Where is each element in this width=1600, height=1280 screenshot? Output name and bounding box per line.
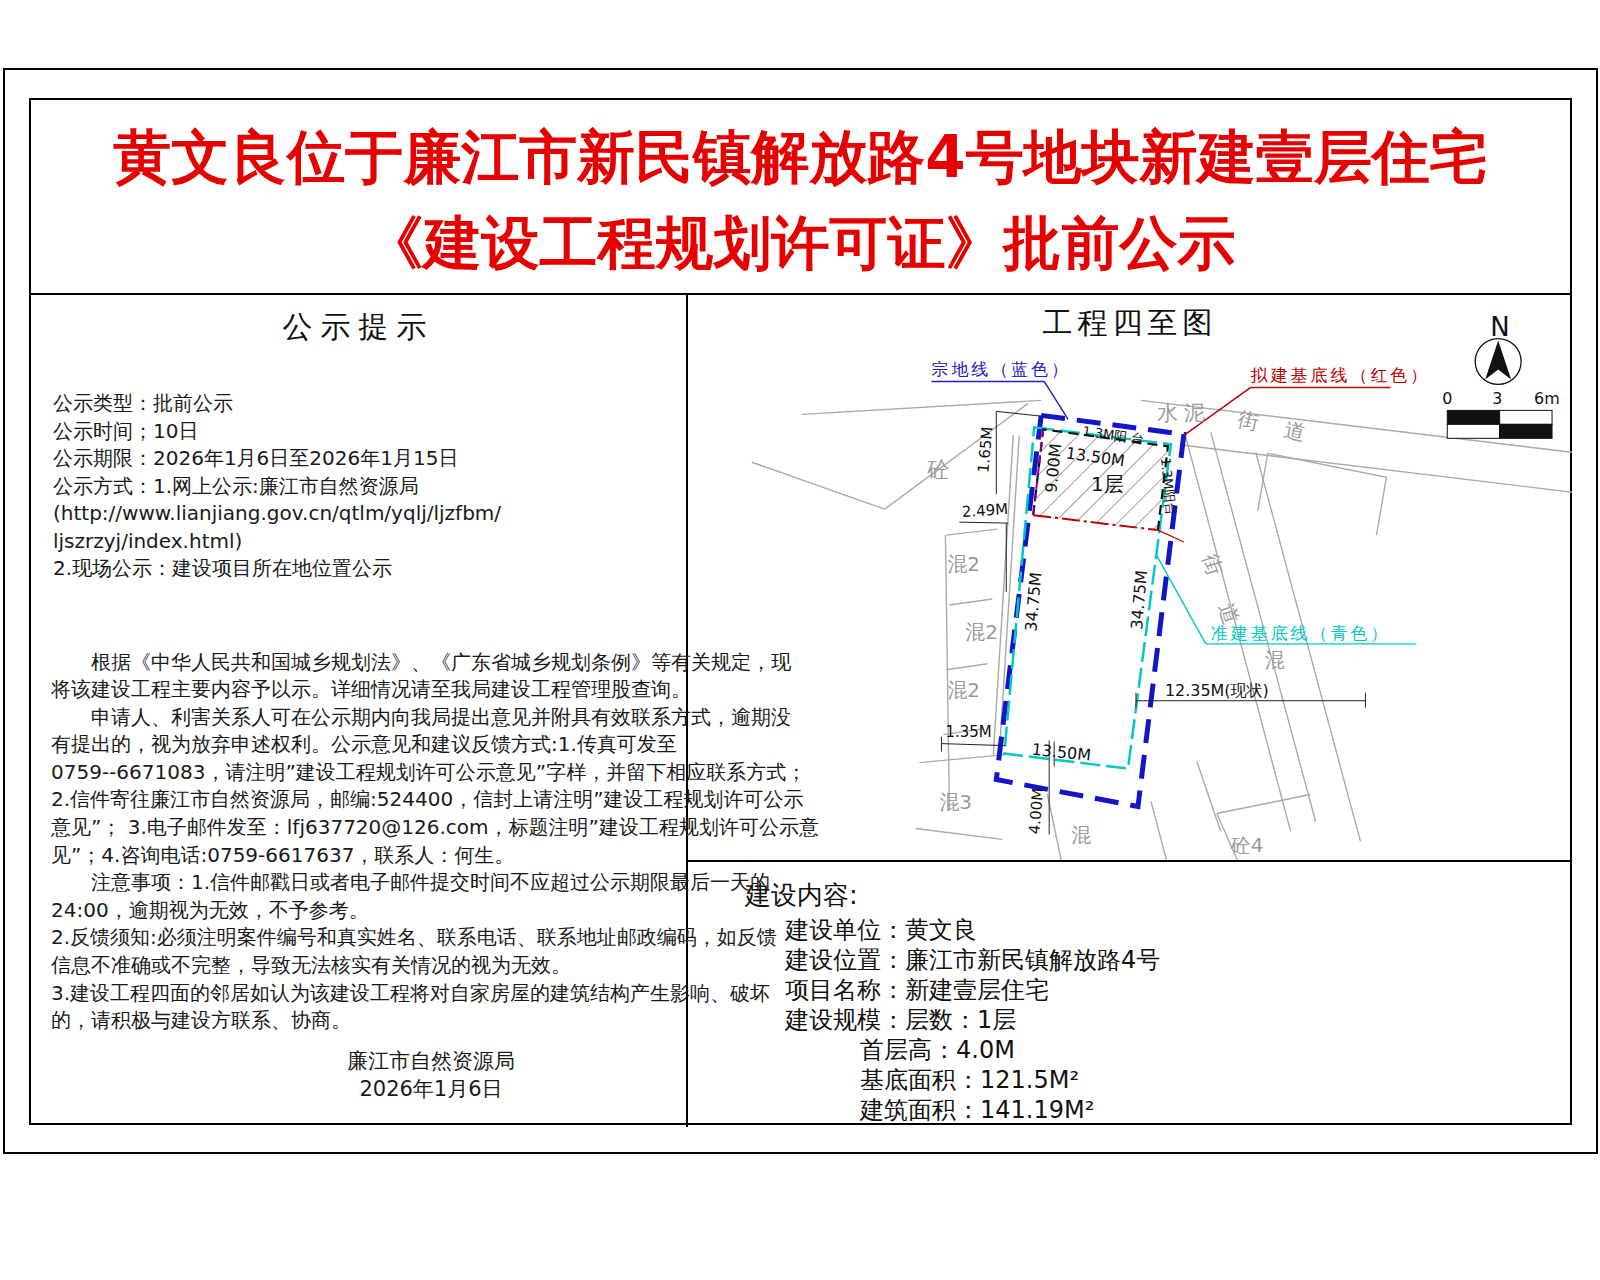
- area-label-tong4: 砼4: [1230, 833, 1264, 857]
- scale-tick-0: 0: [1442, 389, 1452, 408]
- inner-frame: 黄文良位于廉江市新民镇解放路4号地块新建壹层住宅 《建设工程规划许可证》批前公示…: [29, 98, 1572, 1125]
- compass-needle-icon: [1485, 341, 1511, 380]
- page-title-line1: 黄文良位于廉江市新民镇解放路4号地块新建壹层住宅: [31, 114, 1570, 200]
- parcel-line-label: 宗地线（蓝色）: [931, 359, 1071, 379]
- signature-date: 2026年1月6日: [321, 1075, 541, 1103]
- dim-135: 1.35M: [945, 723, 991, 741]
- notice-body-line: 意见”； 3.电子邮件发至：lfj637720@126.com，标题注明”建设工…: [51, 814, 676, 842]
- floor-label: 1层: [1091, 472, 1124, 496]
- notice-body-line: 注意事项：1.信件邮戳日或者电子邮件提交时间不应超过公示期限最后一天的: [51, 869, 676, 897]
- dim-1235: 12.35M(现状): [1165, 681, 1269, 700]
- notice-body-line: 的，请积极与建设方联系、协商。: [51, 1007, 676, 1035]
- proposed-base-label: 拟建基底线（红色）: [1250, 365, 1431, 385]
- content-row-project: 项目名称：新建壹层住宅: [785, 974, 1049, 1006]
- scale-tick-6m: 6m: [1534, 389, 1560, 408]
- site-plan-drawing: 宗地线（蓝色） 拟建基底线（红色） 准建基底线（青色）: [688, 295, 1572, 860]
- notice-body-line: 有提出的，视为放弃申述权利。公示意见和建议反馈方式:1.传真可发至: [51, 731, 676, 759]
- dim-165: 1.65M: [974, 426, 996, 474]
- notice-info-line: 公示类型：批前公示: [53, 390, 672, 418]
- notice-body-line: 24:00，逾期视为无效，不予参考。: [51, 897, 676, 925]
- area-label-hun2: 混2: [947, 678, 980, 702]
- dim-3475-left: 34.75M: [1021, 571, 1045, 632]
- area-label-shuini: 水泥: [1157, 401, 1211, 425]
- notice-body-line: 根据《中华人民共和国城乡规划法》、《广东省城乡规划条例》等有关规定，现: [51, 649, 676, 677]
- construction-content-panel: 建设内容: 建设单位：黄文良 建设位置：廉江市新民镇解放路4号 项目名称：新建壹…: [688, 860, 1572, 1127]
- title-section: 黄文良位于廉江市新民镇解放路4号地块新建壹层住宅 《建设工程规划许可证》批前公示: [31, 100, 1570, 295]
- notice-body-line: 见”；4.咨询电话:0759-6617637，联系人：何生。: [51, 842, 676, 870]
- notice-info-line: 公示期限：2026年1月6日至2026年1月15日: [53, 445, 672, 473]
- notice-body-line: 2.信件寄往廉江市自然资源局，邮编:524400，信封上请注明”建设工程规划许可…: [51, 786, 676, 814]
- area-label-jiedao-top: 街 道: [1236, 407, 1318, 448]
- signature-block: 廉江市自然资源局 2026年1月6日: [321, 1047, 541, 1103]
- site-plan-heading: 工程四至图: [688, 303, 1572, 344]
- notice-heading: 公示提示: [31, 307, 686, 348]
- area-label-tong: 砼: [926, 457, 949, 482]
- notice-body-block: 根据《中华人民共和国城乡规划法》、《广东省城乡规划条例》等有关规定，现 将该建设…: [31, 649, 686, 1035]
- notice-body-line: 将该建设工程主要内容予以示。详细情况请至我局建设工程管理股查询。: [51, 676, 676, 704]
- content-row-location: 建设位置：廉江市新民镇解放路4号: [785, 944, 1160, 976]
- notice-info-line: 2.现场公示：建设项目所在地位置公示: [53, 555, 672, 583]
- page-title-line2: 《建设工程规划许可证》批前公示: [31, 200, 1570, 286]
- content-row-scale: 建设规模：层数：1层: [785, 1004, 1016, 1036]
- notice-body-line: 3.建设工程四面的邻居如认为该建设工程将对自家房屋的建筑结构产生影响、破坏: [51, 980, 676, 1008]
- notice-url-line: (http://www.lianjiang.gov.cn/qtlm/yqlj/l…: [53, 500, 672, 528]
- notice-panel: 公示提示 公示类型：批前公示 公示时间；10日 公示期限：2026年1月6日至2…: [31, 295, 688, 1127]
- content-row-floor-area: 建筑面积：141.19M²: [860, 1094, 1094, 1126]
- area-label-hun3: 混3: [939, 790, 972, 814]
- content-row-height: 首层高：4.0M: [860, 1034, 1015, 1066]
- proposed-base-extension: [1158, 530, 1184, 542]
- area-label-hun2: 混2: [947, 552, 980, 576]
- notice-body-line: 0759--6671083，请注明”建设工程规划许可公示意见”字样，并留下相应联…: [51, 759, 676, 787]
- dim-400: 4.00M: [1025, 787, 1047, 835]
- notice-url-line: ljszrzyj/index.html): [53, 528, 672, 556]
- content-row-base-area: 基底面积：121.5M²: [860, 1064, 1079, 1096]
- dim-1350-bottom: 13.50M: [1031, 740, 1092, 765]
- notice-info-line: 公示时间；10日: [53, 418, 672, 446]
- notice-body-line: 申请人、利害关系人可在公示期内向我局提出意见并附具有效联系方式，逾期没: [51, 704, 676, 732]
- notice-info-line: 公示方式：1.网上公示:廉江市自然资源局: [53, 473, 672, 501]
- area-label-jiedao-right: 街 道: [1198, 551, 1247, 639]
- area-label-hun-right: 混: [1265, 648, 1285, 672]
- dim-249: 2.49M: [961, 500, 1008, 521]
- notice-body-line: 信息不准确或不完整，导致无法核实有关情况的视为无效。: [51, 952, 676, 980]
- content-heading: 建设内容:: [745, 878, 858, 913]
- scale-tick-3: 3: [1492, 389, 1502, 408]
- site-plan-panel: 工程四至图: [688, 295, 1572, 860]
- area-label-hun2: 混2: [965, 620, 998, 644]
- signature-agency: 廉江市自然资源局: [321, 1047, 541, 1075]
- area-label-hun-bottom: 混: [1071, 823, 1091, 847]
- content-row-unit: 建设单位：黄文良: [785, 914, 977, 946]
- scale-bar: 0 3 6m: [1442, 389, 1559, 438]
- notice-info-block: 公示类型：批前公示 公示时间；10日 公示期限：2026年1月6日至2026年1…: [31, 390, 686, 583]
- legend-parcel-line: 宗地线（蓝色）: [931, 359, 1071, 419]
- notice-body-line: 2.反馈须知:必须注明案件编号和真实姓名、联系电话、联系地址邮政编码，如反馈: [51, 924, 676, 952]
- notice-page: 黄文良位于廉江市新民镇解放路4号地块新建壹层住宅 《建设工程规划许可证》批前公示…: [0, 0, 1600, 1280]
